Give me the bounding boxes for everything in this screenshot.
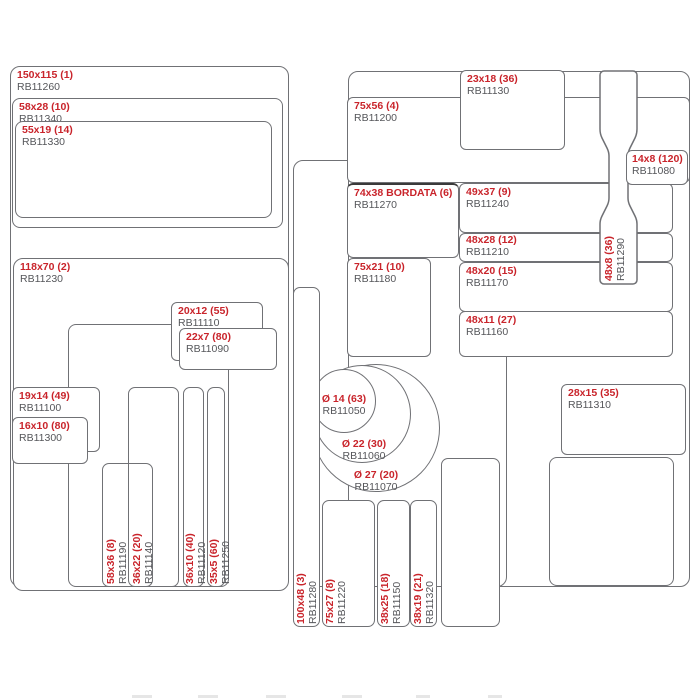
- label-code-text: RB11240: [466, 199, 511, 211]
- label-text: Ø 22 (30) RB11060: [342, 438, 386, 462]
- label-size-text: Ø 22 (30): [342, 438, 386, 450]
- label-text: 48x8 (36) RB11290: [604, 236, 628, 281]
- label-outline-74x38-bordata: 74x38 BORDATA (6) RB11270: [347, 183, 459, 258]
- label-code-text: RB11270: [354, 200, 452, 212]
- label-code-text: RB11280: [308, 573, 320, 624]
- label-text: 38x19 (21) RB11320: [413, 573, 437, 624]
- label-code-text: RB11140: [144, 533, 156, 584]
- label-code-text: RB11090: [186, 344, 231, 356]
- label-code-text: RB11230: [20, 274, 70, 286]
- label-code-text: RB11070: [354, 481, 398, 493]
- label-text: 19x14 (49) RB11100: [13, 388, 70, 415]
- label-text: 28x15 (35) RB11310: [562, 385, 619, 412]
- cropped-caption-mark: [342, 695, 362, 698]
- label-text: 150x115 (1) RB11260: [11, 67, 73, 94]
- label-code-text: RB11320: [425, 573, 437, 624]
- label-text: 38x25 (18) RB11150: [380, 573, 404, 624]
- cropped-caption-mark: [266, 695, 286, 698]
- label-text: 35x5 (60) RB11250: [209, 539, 233, 584]
- label-outline-55x19: 55x19 (14) RB11330: [15, 121, 272, 218]
- label-outline-48x11: 48x11 (27) RB11160: [459, 311, 673, 357]
- label-size-text: Ø 27 (20): [354, 469, 398, 481]
- label-size-diagram: 150x115 (1) RB11260 58x28 (10) RB11340 5…: [0, 0, 700, 700]
- label-code-text: RB11300: [19, 433, 70, 445]
- label-text: 118x70 (2) RB11230: [14, 259, 70, 286]
- label-text: Ø 27 (20) RB11070: [354, 469, 398, 493]
- label-code-text: RB11060: [342, 450, 386, 462]
- label-text: 55x19 (14) RB11330: [16, 122, 73, 149]
- cropped-caption-mark: [132, 695, 152, 698]
- label-code-text: RB11100: [19, 403, 70, 415]
- label-text: 16x10 (80) RB11300: [13, 418, 70, 445]
- label-text: 75x21 (10) RB11180: [348, 259, 405, 286]
- label-code-text: RB11080: [632, 166, 683, 178]
- label-code-text: RB11190: [118, 539, 130, 584]
- label-text: 49x37 (9) RB11240: [460, 184, 511, 211]
- label-outline-48x28: 48x28 (12) RB11210: [459, 233, 673, 262]
- label-code-text: RB11180: [354, 274, 405, 286]
- label-text: 75x56 (4) RB11200: [348, 98, 399, 125]
- label-text: 36x10 (40) RB11120: [185, 533, 209, 584]
- label-text: 48x28 (12) RB11210: [460, 234, 517, 259]
- label-outline-14x8: 14x8 (120) RB11080: [626, 150, 688, 185]
- label-text: Ø 14 (63) RB11050: [322, 393, 366, 417]
- cropped-caption-mark: [198, 695, 218, 698]
- cropped-caption-mark: [488, 695, 502, 698]
- label-code-text: RB11290: [616, 236, 628, 281]
- label-outline-75x21: 75x21 (10) RB11180: [347, 258, 431, 357]
- label-code-text: RB11330: [22, 137, 73, 149]
- container-outline-bottom-center: [441, 458, 500, 627]
- label-code-text: RB11210: [466, 247, 517, 259]
- label-text: 74x38 BORDATA (6) RB11270: [348, 185, 452, 212]
- label-size-text: Ø 14 (63): [322, 393, 366, 405]
- label-code-text: RB11130: [467, 86, 518, 98]
- label-code-text: RB11150: [392, 573, 404, 624]
- label-outline-22x7: 22x7 (80) RB11090: [179, 328, 277, 370]
- label-code-text: RB11200: [354, 113, 399, 125]
- label-code-text: RB11260: [17, 82, 73, 94]
- label-text: 58x36 (8) RB11190: [106, 539, 130, 584]
- cropped-caption-mark: [416, 695, 430, 698]
- label-outline-49x37: 49x37 (9) RB11240: [459, 183, 673, 233]
- label-text: 100x48 (3) RB11280: [296, 573, 320, 624]
- label-text: 48x11 (27) RB11160: [460, 312, 516, 339]
- label-code-text: RB11170: [466, 278, 517, 290]
- label-code-text: RB11310: [568, 400, 619, 412]
- label-text: 75x27 (8) RB11220: [325, 579, 349, 624]
- label-text: 36x22 (20) RB11140: [132, 533, 156, 584]
- label-outline-48x20: 48x20 (15) RB11170: [459, 262, 673, 312]
- label-text: 22x7 (80) RB11090: [180, 329, 231, 356]
- label-outline-23x18: 23x18 (36) RB11130: [460, 70, 565, 150]
- label-outline-16x10: 16x10 (80) RB11300: [12, 417, 88, 464]
- label-text: 20x12 (55) RB11110: [172, 303, 229, 330]
- label-text: 14x8 (120) RB11080: [627, 151, 683, 178]
- label-text: 23x18 (36) RB11130: [461, 71, 518, 98]
- label-code-text: RB11050: [322, 405, 366, 417]
- container-outline-bottom-right: [549, 457, 674, 586]
- label-code-text: RB11220: [337, 579, 349, 624]
- label-code-text: RB11160: [466, 327, 516, 339]
- label-text: 48x20 (15) RB11170: [460, 263, 517, 290]
- label-code-text: RB11250: [221, 539, 233, 584]
- label-outline-28x15: 28x15 (35) RB11310: [561, 384, 686, 455]
